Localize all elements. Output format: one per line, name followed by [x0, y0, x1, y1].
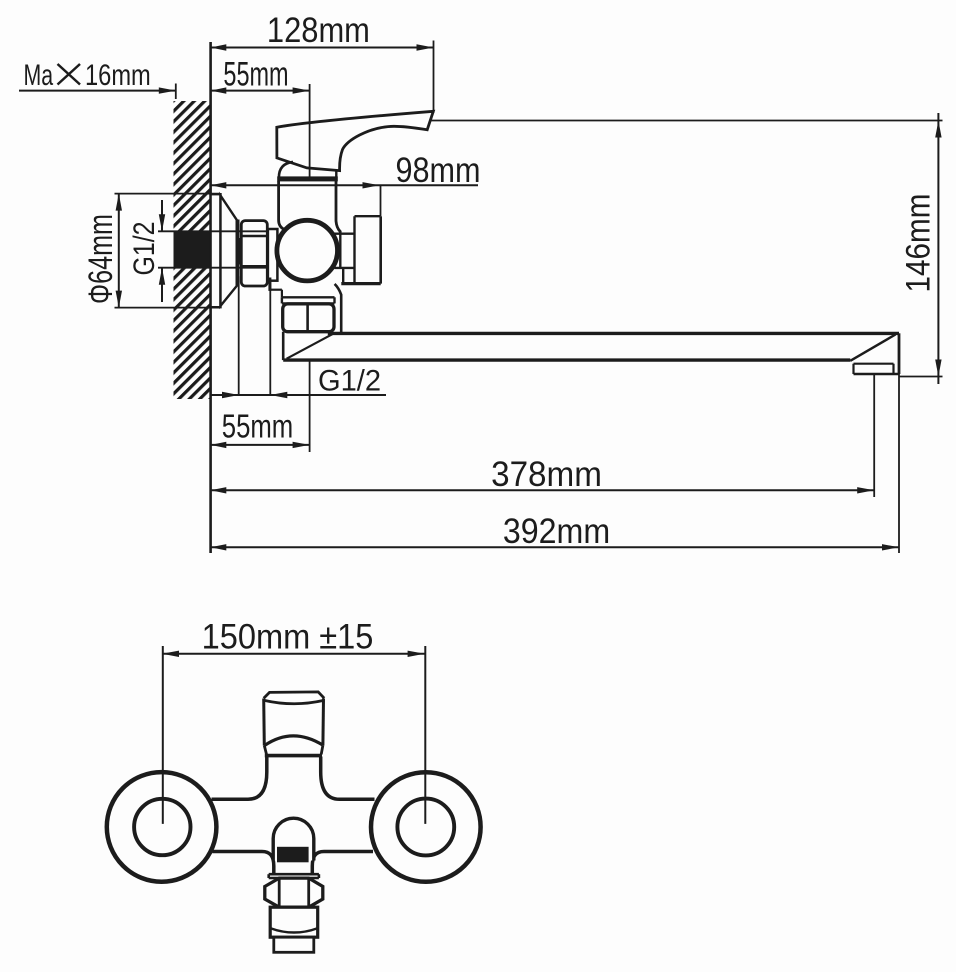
svg-text:Φ64mm: Φ64mm	[82, 214, 120, 304]
svg-text:128mm: 128mm	[267, 10, 370, 49]
svg-text:Ma: Ma	[24, 60, 54, 92]
svg-text:16mm: 16mm	[85, 58, 151, 91]
svg-text:G1/2: G1/2	[127, 222, 161, 276]
svg-text:392mm: 392mm	[503, 513, 610, 552]
svg-text:55mm: 55mm	[223, 56, 288, 93]
svg-text:150mm ±15: 150mm ±15	[202, 617, 374, 657]
svg-text:G1/2: G1/2	[318, 364, 381, 397]
svg-text:378mm: 378mm	[491, 455, 602, 494]
svg-text:55mm: 55mm	[222, 409, 293, 446]
svg-text:98mm: 98mm	[395, 150, 480, 189]
svg-text:146mm: 146mm	[899, 194, 937, 293]
